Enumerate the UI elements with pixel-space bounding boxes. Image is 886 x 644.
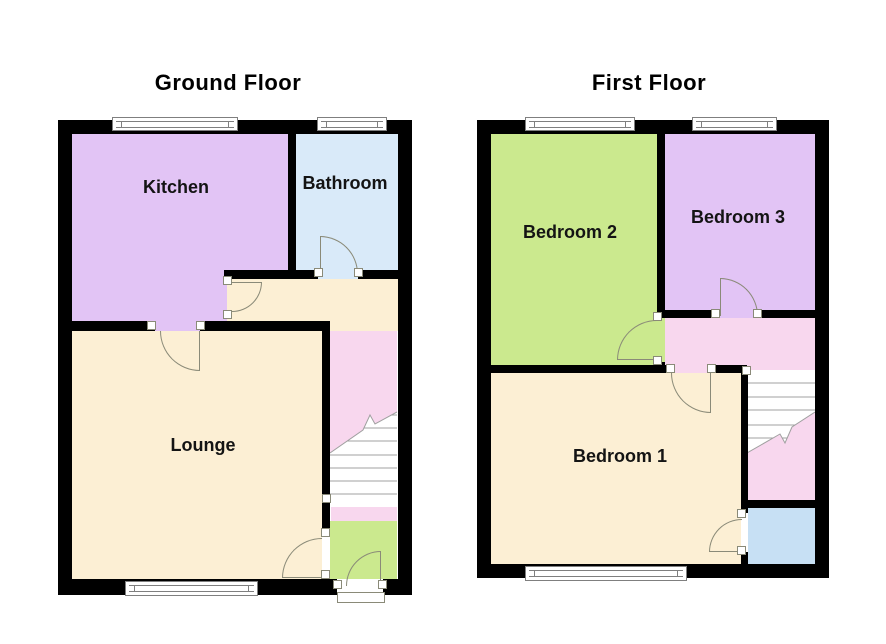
label-bedroom1: Bedroom 1 (545, 446, 695, 467)
window-tick (677, 570, 678, 576)
wall-bed3-bottom-seg1 (657, 310, 715, 318)
door-jamb (653, 312, 662, 321)
window-bedroom3 (692, 117, 777, 131)
label-bedroom2: Bedroom 2 (495, 222, 645, 243)
wall-first-right (815, 120, 829, 578)
wall-bed1-top-seg1 (477, 365, 670, 373)
door-jamb (753, 309, 762, 318)
window-pane (696, 121, 773, 128)
floorplan-canvas: Ground Floor (0, 0, 886, 644)
door-jamb (707, 364, 716, 373)
door-jamb (742, 366, 751, 375)
wall-understairs (741, 373, 748, 513)
wall-bed3-bottom-seg2 (758, 310, 815, 318)
window-tick (625, 121, 626, 127)
staircase-first (747, 370, 815, 500)
wall-stairs-bottom (741, 500, 815, 508)
door-jamb (737, 546, 746, 555)
window-tick (534, 121, 535, 127)
window-bedroom2 (525, 117, 635, 131)
door-jamb (653, 356, 662, 365)
room-store (748, 508, 815, 564)
door-jamb (666, 364, 675, 373)
window-pane (529, 121, 631, 128)
door-jamb (737, 509, 746, 518)
first-floor-title: First Floor (529, 70, 769, 96)
window-tick (534, 570, 535, 576)
window-tick (767, 121, 768, 127)
wall-first-left (477, 120, 491, 578)
label-bedroom3: Bedroom 3 (663, 207, 813, 228)
door-jamb (711, 309, 720, 318)
window-pane (529, 570, 683, 577)
window-bedroom1 (525, 566, 687, 581)
floor-plan-first: First Floor (0, 0, 886, 644)
window-tick (701, 121, 702, 127)
